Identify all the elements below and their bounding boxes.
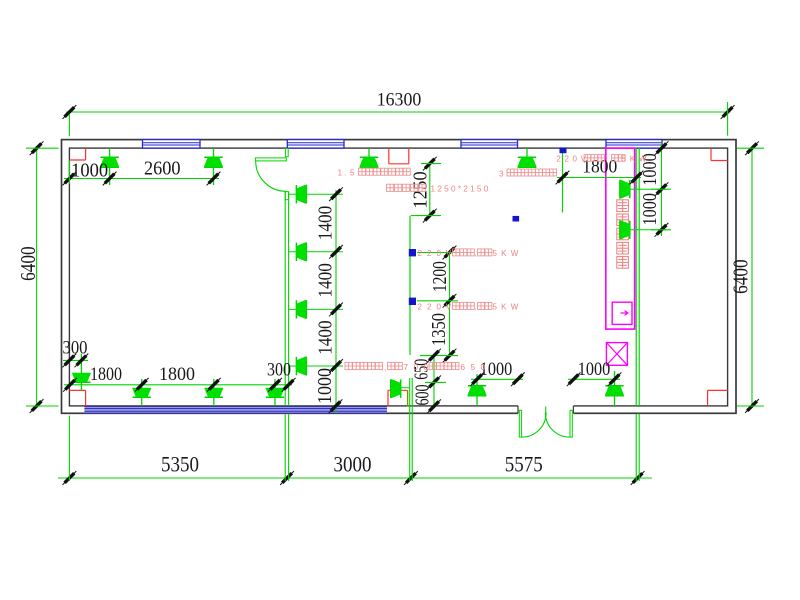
svg-text:1800: 1800 bbox=[90, 364, 122, 385]
svg-text:1000: 1000 bbox=[71, 159, 108, 181]
svg-text:5 K W: 5 K W bbox=[493, 303, 520, 312]
svg-text:2600: 2600 bbox=[144, 158, 181, 180]
svg-text:,: , bbox=[384, 363, 386, 372]
svg-text:,: , bbox=[475, 303, 477, 312]
svg-text:6400: 6400 bbox=[728, 259, 752, 294]
svg-text:3000: 3000 bbox=[334, 451, 372, 476]
svg-text:1400: 1400 bbox=[314, 206, 336, 240]
svg-text:1000: 1000 bbox=[578, 359, 611, 380]
svg-text:5 K W: 5 K W bbox=[622, 154, 648, 163]
svg-text:16300: 16300 bbox=[377, 90, 422, 111]
svg-text:6 5 0: 6 5 0 bbox=[461, 363, 487, 372]
svg-text:5: 5 bbox=[350, 169, 355, 178]
svg-text:1000: 1000 bbox=[640, 193, 661, 226]
svg-text:2 2 0 V: 2 2 0 V bbox=[418, 303, 453, 312]
svg-text:5575: 5575 bbox=[505, 452, 543, 477]
svg-text:5 K W: 5 K W bbox=[493, 249, 520, 258]
svg-text:1200: 1200 bbox=[429, 261, 451, 292]
svg-text:1400: 1400 bbox=[314, 320, 336, 354]
svg-text:,: , bbox=[475, 249, 477, 258]
svg-text:,: , bbox=[606, 154, 608, 163]
svg-text:1400: 1400 bbox=[314, 263, 336, 297]
svg-text:300: 300 bbox=[267, 360, 291, 381]
svg-text:300: 300 bbox=[63, 337, 88, 358]
svg-text:1350: 1350 bbox=[428, 313, 450, 346]
svg-text:6400: 6400 bbox=[16, 246, 40, 281]
svg-text:1800: 1800 bbox=[159, 364, 195, 385]
svg-text:2 2 0 V: 2 2 0 V bbox=[418, 249, 453, 258]
svg-text:2 2 0 V: 2 2 0 V bbox=[556, 154, 586, 163]
svg-text:.: . bbox=[344, 169, 346, 178]
svg-text:1000: 1000 bbox=[314, 368, 336, 404]
svg-text:1 2 5 0 * 2 1 5 0: 1 2 5 0 * 2 1 5 0 bbox=[431, 185, 489, 194]
svg-text:1: 1 bbox=[338, 169, 343, 178]
svg-text:3: 3 bbox=[499, 169, 504, 178]
svg-text:5350: 5350 bbox=[161, 451, 199, 476]
svg-text:1250: 1250 bbox=[409, 171, 431, 209]
svg-text:600: 600 bbox=[411, 385, 433, 406]
svg-text:,: , bbox=[426, 363, 428, 372]
